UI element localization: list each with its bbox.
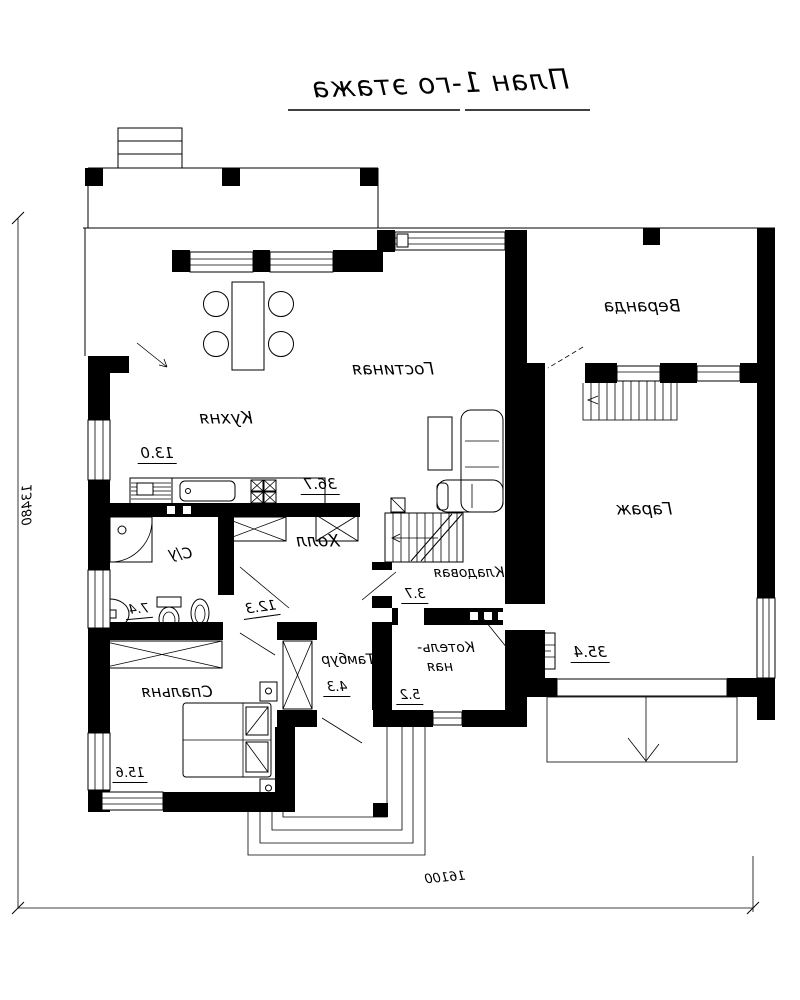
room-label-bathroom: С/у [168,547,192,562]
room-area-bedroom: 15.6 [113,767,148,783]
room-area-garage: 35.4 [570,645,609,663]
back-steps [118,128,182,168]
room-area-pantry: 3.7 [402,588,429,604]
room-label-boiler-line2: ная [427,660,453,674]
dining-table [232,282,264,370]
room-area-boiler: 5.2 [397,689,424,705]
veranda-door-opening [545,363,585,383]
closet-vestibule [283,641,312,709]
stove-icon [251,480,276,503]
room-area-kitchen: 13.0 [137,446,176,464]
boiler-door-opening [398,608,424,625]
room-label-veranda: Веранда [604,299,681,316]
floor-plan-drawing [0,0,800,1000]
front-door-opening [317,710,373,727]
floor-plan: План 1-го этажа Гостиная 36.7 Кухня 13.0… [0,0,800,1000]
sink-icon [131,478,235,504]
bathroom-fixtures [110,517,209,631]
dining-chair [204,292,229,317]
bidet-icon [191,599,209,627]
sofa [437,410,503,512]
bed [183,703,271,777]
room-label-vestibule: Тамбур [321,653,375,667]
dining-chair [204,332,229,357]
wardrobe-bedroom [102,641,222,668]
room-label-bedroom: Спальня [141,684,212,700]
room-label-living: Гостиная [352,362,434,379]
room-label-boiler-line1: Котель- [417,641,475,655]
dimension-vertical: 13480 [22,484,35,525]
room-label-hall: Холл [296,534,340,551]
room-area-living: 36.7 [300,477,339,495]
walls [88,230,775,817]
driveway [547,697,737,762]
dining-chair [269,332,294,357]
porch-steps [248,712,425,855]
garage-door-opening-inner [503,604,547,630]
coffee-table [428,417,452,470]
room-label-pantry: Кладовая [434,566,505,580]
dining-chair [269,292,294,317]
garage-door [557,679,727,696]
interior-stairs [385,498,463,562]
room-area-vestibule: 4.3 [324,681,351,697]
dimension-horizontal: 16100 [424,870,466,887]
veranda-stairs [583,380,677,420]
shower-icon [110,517,152,562]
room-area-bathroom: 7.4 [125,602,153,620]
kitchen-counter [130,478,325,504]
dining-set [204,282,294,370]
nightstand [260,682,277,701]
room-label-garage: Гараж [616,502,672,519]
room-label-kitchen: Кухня [199,411,253,428]
porch-pillar [373,803,388,817]
